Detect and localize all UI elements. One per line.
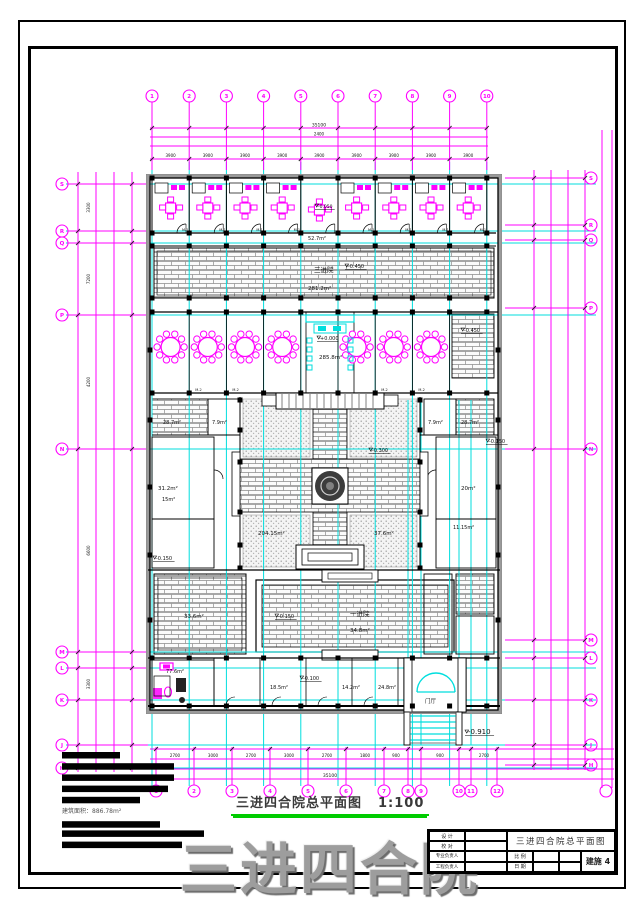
chair [156,336,162,342]
chair [268,352,274,358]
chair [349,331,355,337]
column [150,231,155,236]
bed [192,183,205,193]
chair [194,336,200,342]
annotation-text: +0.000 [320,336,339,342]
axis-bubble-label: L [60,666,64,672]
column [447,176,452,181]
column [373,391,378,396]
axis-bubble-label: 3 [224,94,228,100]
column [496,485,501,490]
cabinet [477,185,483,190]
title-block: 设 计 校 对 专业负责人 工程负责人 三进四合院总平面图 比 例 日 期 建施… [427,829,617,874]
column [447,296,452,301]
chair [246,357,252,363]
titleblock-date-label: 日 期 [507,862,533,873]
column [298,704,303,709]
chair [181,344,187,350]
chair [238,331,244,337]
column [418,398,423,403]
cabinet [394,185,400,190]
chair [242,214,248,219]
column [418,460,423,465]
column [496,553,501,558]
gate-pier [458,658,466,712]
chair [253,352,259,358]
dim-text: 3900 [463,153,474,158]
chair [231,352,237,358]
table [203,203,213,213]
column [150,176,155,181]
dim-text: 6600 [86,545,91,556]
chair [308,207,314,212]
door-tag: M-1 [182,228,189,232]
door-tag: M-2 [381,388,388,392]
column [238,428,243,433]
annotation-text: 33.6m² [184,613,204,620]
rect [163,665,170,669]
column [261,244,266,249]
annotation-text: -0.300 [372,448,388,454]
note-bar [62,752,120,759]
side-passage-paving [452,314,494,378]
chair [251,205,257,210]
chair [441,344,447,350]
column [484,391,489,396]
gate-step-wall [456,712,462,745]
column [187,391,192,396]
column [447,704,452,709]
column [496,618,501,623]
chair [316,216,322,221]
table [389,203,399,213]
chair [432,357,438,363]
bed [229,183,242,193]
chair [439,336,445,342]
column [336,310,341,315]
annotation-text: 204.15m² [258,530,285,537]
chair [200,331,206,337]
chair [377,344,383,350]
column [447,244,452,249]
table [273,338,292,357]
column [148,485,153,490]
column [238,398,243,403]
chair [316,199,322,204]
cabinet [402,185,408,190]
annotation-text: 281.2m² [308,285,331,292]
axis-bubble-label: L [589,656,593,662]
chair [391,197,397,202]
dim-text: 2700 [322,753,333,758]
column [447,656,452,661]
dim-text: 900 [436,753,444,758]
column [238,543,243,548]
dim-text: 3000 [284,753,295,758]
bed [267,183,280,193]
column [410,244,415,249]
bed [341,183,354,193]
column [298,391,303,396]
annotation-text: 11.15m² [453,525,474,531]
table [198,338,217,357]
chair [386,331,392,337]
chair [290,336,296,342]
stage-block [318,326,326,331]
cabinet [291,185,297,190]
circle [326,482,334,490]
table [463,203,473,213]
chair [288,205,294,210]
chair [465,197,471,202]
axis-bubble-label: J [589,743,592,749]
column [447,310,452,315]
chair [404,344,410,350]
chair [279,214,285,219]
dim-text: 3900 [426,153,437,158]
titleblock-empty-cell [559,851,581,862]
column [410,296,415,301]
column [336,176,341,181]
titleblock-sheet-number: 建施 4 [581,851,615,872]
column [410,310,415,315]
column [496,348,501,353]
cabinet [208,185,214,190]
column [298,244,303,249]
column [410,656,415,661]
cabinet [365,185,371,190]
chair [275,331,281,337]
annotation-text: 15m² [162,497,175,503]
column [336,296,341,301]
annotation-text: -0.450 [348,264,364,270]
dim-text: 7200 [86,273,91,284]
chair [290,352,296,358]
chair [395,331,401,337]
titleblock-empty-cell [559,862,581,873]
column [336,231,341,236]
column [298,296,303,301]
axis-bubble-label: 11 [467,789,475,795]
column [418,566,423,571]
axis-bubble-label: 9 [448,94,452,100]
chair [238,357,244,363]
annotation-text: -0.910 [468,728,491,736]
annotation-text: 28.7m² [163,420,181,426]
column [373,176,378,181]
chair [402,336,408,342]
annotation-text: 31.2m² [158,485,178,492]
door-tag: M-1 [405,228,412,232]
chair [154,344,160,350]
titleblock-discipline-lead-label: 专业负责人 [429,851,465,862]
axis-bubble-label: 10 [455,789,463,795]
titleblock-empty-cell [533,851,559,862]
chair [177,205,183,210]
table [384,338,403,357]
door-tag: M-1 [219,228,226,232]
chair [168,197,174,202]
chair [205,214,211,219]
axis-bubble-label: M [588,638,593,644]
note-bar [62,774,174,781]
cabinet [253,185,259,190]
bed [415,183,428,193]
axis-bubble-label: J [60,743,63,749]
chair [358,357,364,363]
dim-text: 1800 [360,753,371,758]
bed [155,183,168,193]
chair [271,205,277,210]
column [261,704,266,709]
column [410,176,415,181]
chair [417,336,423,342]
note-bar [62,821,160,828]
column [410,391,415,396]
column [336,244,341,249]
column [187,176,192,181]
annotation-text: -0.150 [489,439,505,445]
chair [424,331,430,337]
chair [246,331,252,337]
cabinet [216,185,222,190]
axis-bubble-label: M [59,650,64,656]
chair [349,357,355,363]
axis-bubble-label: 10 [483,94,491,100]
dim-text: 3300 [86,678,91,689]
axis-bubble-label: Q [589,238,594,244]
drawing-title-text: 三进四合院总平面图 [236,796,362,811]
chair [228,344,234,350]
chair [380,352,386,358]
column [418,510,423,515]
chair [437,205,443,210]
column [224,244,229,249]
annotation-text: -0.150 [156,556,172,562]
chair [400,205,406,210]
chair [439,352,445,358]
chair [465,214,471,219]
column [261,176,266,181]
column [224,391,229,396]
cabinet [357,185,363,190]
chair [172,357,178,363]
column [150,391,155,396]
axis-bubble-label: 2 [192,789,196,795]
chair [391,214,397,219]
column [238,510,243,515]
column [187,656,192,661]
column [484,244,489,249]
chair [197,205,203,210]
chair [163,331,169,337]
chair [163,357,169,363]
chair [268,336,274,342]
shower [153,688,162,699]
table [240,203,250,213]
titleblock-empty-cell [465,851,507,862]
porch [296,545,364,569]
table [426,203,436,213]
dim-text: 3900 [166,153,177,158]
door-tag: M-1 [442,228,449,232]
door-tag: M-1 [256,228,263,232]
door-tag: M-1 [480,228,487,232]
column [373,704,378,709]
column [148,418,153,423]
titleblock-checker-label: 校 对 [429,841,465,851]
column [150,656,155,661]
axis-bubble-label: P [589,306,593,312]
annotation-text: -0.050 [318,204,333,210]
column [224,310,229,315]
annotation-text: -0.150 [278,614,294,620]
chair [178,352,184,358]
chair [364,336,370,342]
chair [209,331,215,337]
column [224,656,229,661]
column [187,704,192,709]
dim-text: 3300 [86,202,91,213]
stage-block [333,326,341,331]
annotation-text: -0.450 [464,328,480,334]
dim-text: 3900 [203,153,214,158]
annotation-text: 28.7m² [461,420,479,426]
column [224,704,229,709]
chair [395,357,401,363]
chair [474,205,480,210]
plan-room-fills [148,176,500,712]
axis-bubble-label: Q [60,241,65,247]
door-tag: M-2 [418,388,425,392]
dim-text: 2700 [246,753,257,758]
axis-bubble-label: S [589,176,593,182]
titleblock-empty-cell [465,831,507,841]
cabinet [431,185,437,190]
table [422,338,441,357]
titleblock-designer-label: 设 计 [429,831,465,841]
fixture [176,678,186,692]
chair [457,205,463,210]
chair [380,336,386,342]
chair [354,214,360,219]
column [484,656,489,661]
dim-text: 3900 [314,153,325,158]
bed [453,183,466,193]
column [187,244,192,249]
axis-bubble-label: R [589,223,594,229]
table [166,203,176,213]
chair [364,352,370,358]
column [150,296,155,301]
dim-text: 3900 [277,153,288,158]
axis-bubble-label: 12 [493,789,501,795]
dim-text: 3000 [208,753,219,758]
cabinet [469,185,475,190]
chair [428,197,434,202]
chair [172,331,178,337]
door-tag: M-1 [368,228,375,232]
annotation-text: 52.7m² [308,236,326,242]
column [373,310,378,315]
dim-text: 900 [392,753,400,758]
column [238,460,243,465]
chair [218,344,224,350]
annotation-text: 20m² [461,485,476,492]
titleblock-empty-cell [533,862,559,873]
floor-plan-canvas: 1234567891039003900390039003900390039003… [0,0,644,906]
porch [322,570,378,582]
platform-step [262,395,276,406]
cabinet [245,185,251,190]
chair [340,344,346,350]
cabinet [179,185,185,190]
axis-bubble-label: S [60,182,64,188]
column [298,176,303,181]
axis-bubble-label: 8 [410,94,414,100]
chair [428,214,434,219]
drawing-sheet: 1234567891039003900390039003900390039003… [0,0,644,906]
column [261,310,266,315]
chair [216,336,222,342]
chair [266,344,272,350]
cabinet [439,185,445,190]
column [484,310,489,315]
door-tag: M-2 [195,388,202,392]
column [148,553,153,558]
chair [279,197,285,202]
drawing-title: 三进四合院总平面图1:100 [231,792,429,816]
annotation-text: 77.6m² [166,669,184,675]
annotation-text: 18.5m² [270,685,288,691]
chair [234,205,240,210]
chair [178,336,184,342]
dim-text: 4200 [86,376,91,387]
column [150,704,155,709]
titleblock-scale-label: 比 例 [507,851,533,862]
axis-bubble-label: 7 [373,94,377,100]
column [336,391,341,396]
column [410,704,415,709]
platform-step [384,395,398,406]
chair [383,205,389,210]
column [418,428,423,433]
west-wing-paved-room [152,399,208,435]
notes-caption: 建筑面积：886.78m² [62,806,121,815]
note-bar [62,763,174,770]
cabinet [171,185,177,190]
chair [156,352,162,358]
chair [205,197,211,202]
toilet [165,687,172,697]
table [352,203,362,213]
column [484,296,489,301]
dim-text: 2700 [479,753,490,758]
axis-bubble-label: H [589,763,594,769]
note-bar [62,842,182,849]
dim-text: 3900 [389,153,400,158]
chair [242,197,248,202]
column [418,543,423,548]
column [336,656,341,661]
east-wing-paved-room [456,399,494,435]
annotation-text: -0.100 [303,676,319,682]
chair [283,357,289,363]
annotation-text: 37.6m² [374,530,394,537]
door-tag: M-1 [294,228,301,232]
gate-step-wall [404,712,410,745]
chair [191,344,197,350]
